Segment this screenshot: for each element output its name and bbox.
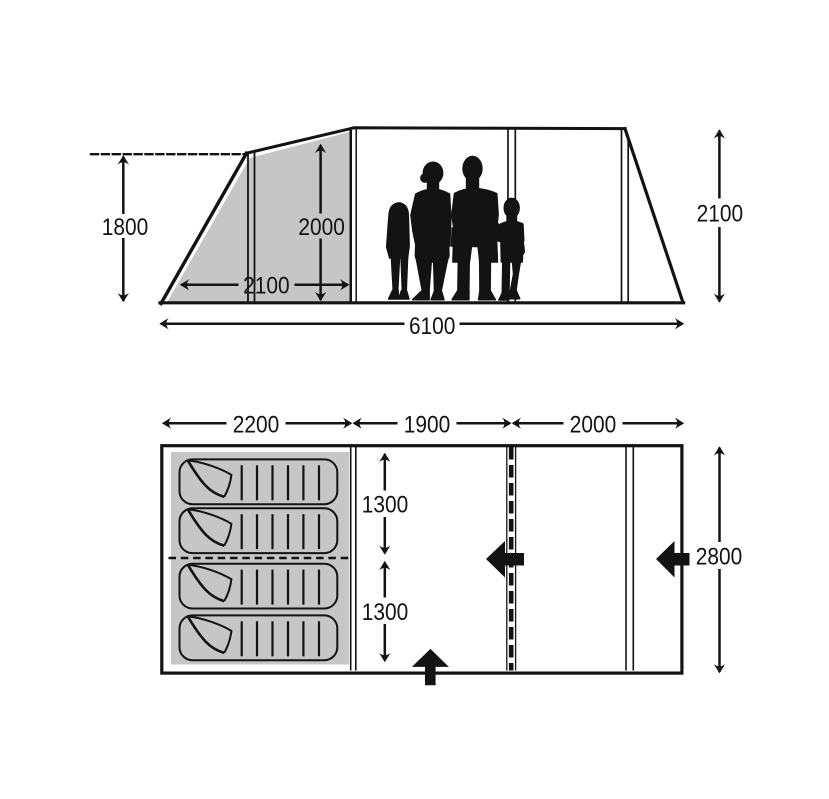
svg-text:2200: 2200 [233,411,280,438]
svg-text:2100: 2100 [243,273,290,300]
svg-text:2100: 2100 [697,201,744,228]
svg-text:2800: 2800 [696,543,743,570]
svg-text:1300: 1300 [362,599,409,626]
svg-text:6100: 6100 [409,313,456,340]
svg-text:1800: 1800 [102,214,149,241]
svg-text:2000: 2000 [570,411,617,438]
svg-text:1300: 1300 [362,492,409,519]
svg-text:1900: 1900 [404,411,451,438]
svg-text:2000: 2000 [298,214,345,241]
